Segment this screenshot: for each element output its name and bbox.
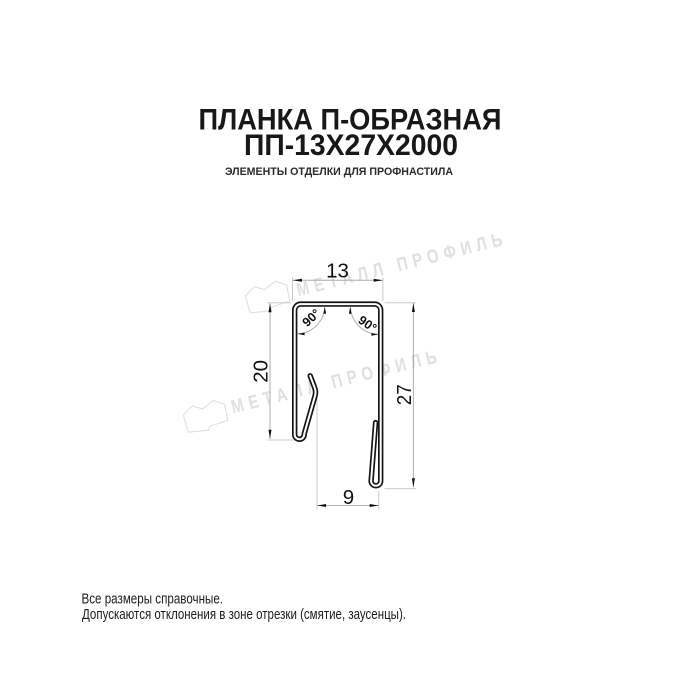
svg-text:27: 27 bbox=[393, 384, 416, 405]
svg-text:Все размеры справочные.: Все размеры справочные. bbox=[82, 592, 224, 608]
svg-text:20: 20 bbox=[249, 360, 272, 383]
svg-text:90°: 90° bbox=[356, 313, 380, 335]
svg-text:9: 9 bbox=[343, 486, 354, 509]
svg-text:ПП-13Х27Х2000: ПП-13Х27Х2000 bbox=[244, 129, 458, 162]
svg-text:ЭЛЕМЕНТЫ ОТДЕЛКИ ДЛЯ ПРОФНАСТИ: ЭЛЕМЕНТЫ ОТДЕЛКИ ДЛЯ ПРОФНАСТИЛА bbox=[225, 166, 453, 178]
svg-text:90°: 90° bbox=[300, 306, 323, 329]
svg-text:Допускаются отклонения в зоне: Допускаются отклонения в зоне отрезки (с… bbox=[82, 607, 406, 623]
svg-text:13: 13 bbox=[326, 260, 349, 283]
